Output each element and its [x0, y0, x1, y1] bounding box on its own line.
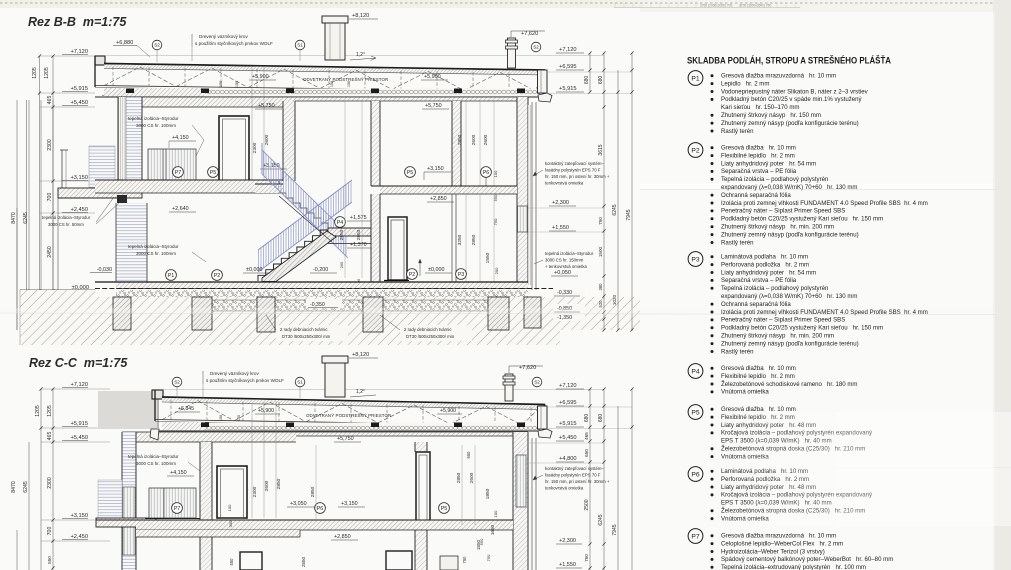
svg-text:Zhutnený štrkový násyp hr. m: Zhutnený štrkový násyp hr. min. 200 mm: [721, 224, 834, 231]
svg-text:s použitím styčníkových prvkov: s použitím styčníkových prvkov WOLF: [206, 378, 284, 383]
svg-text:2850: 2850: [276, 478, 282, 489]
svg-text:2850: 2850: [456, 472, 462, 483]
svg-text:kontaktný zatepľovací systém–: kontaktný zatepľovací systém–: [545, 161, 604, 166]
svg-text:700: 700: [47, 193, 53, 202]
svg-text:3000 CS hr. 100mm: 3000 CS hr. 100mm: [136, 251, 176, 256]
svg-text:2600: 2600: [483, 134, 489, 145]
svg-text:380: 380: [598, 283, 603, 291]
svg-text:750: 750: [584, 554, 589, 562]
svg-text:Penetračný náter – Siplast Pri: Penetračný náter – Siplast Primer Speed …: [721, 208, 845, 215]
svg-text:S1: S1: [297, 43, 303, 48]
svg-text:±0,000: ±0,000: [246, 267, 262, 273]
svg-text:2850: 2850: [310, 486, 316, 497]
svg-text:Rastlý terén: Rastlý terén: [721, 348, 754, 355]
svg-text:+3,150: +3,150: [427, 166, 444, 172]
svg-text:Izolácia proti zemnej vlhkosti: Izolácia proti zemnej vlhkosti FUNDAMENT…: [721, 200, 928, 207]
svg-text:fasádny polystyrén EPS 70 F: fasádny polystyrén EPS 70 F: [545, 473, 601, 478]
svg-text:Laminátová podlaha hr. 10 mm: Laminátová podlaha hr. 10 mm: [721, 254, 808, 261]
svg-text:Zhutnený štrkový násyp hr. m: Zhutnený štrkový násyp hr. min. 200 mm: [721, 333, 834, 340]
svg-text:+3,150: +3,150: [70, 175, 88, 181]
svg-text:Rez B-B m=1:75: Rez B-B m=1:75: [28, 15, 127, 29]
svg-text:Liaty anhydridový poter hr.: Liaty anhydridový poter hr. 54 mm: [721, 269, 816, 276]
svg-text:+5,915: +5,915: [70, 421, 88, 427]
svg-text:2 rady debniacich tvárnic: 2 rady debniacich tvárnic: [280, 327, 328, 332]
svg-text:+3,150: +3,150: [70, 513, 88, 519]
svg-text:+6,845: +6,845: [178, 406, 194, 412]
svg-text:Vodonepriepustný náter Slikato: Vodonepriepustný náter Slikaton B, náter…: [721, 88, 869, 95]
svg-text:+6,595: +6,595: [559, 64, 577, 70]
svg-text:2300: 2300: [47, 477, 53, 489]
svg-text:+1,550: +1,550: [552, 225, 569, 231]
svg-text:1,2°: 1,2°: [356, 389, 365, 395]
svg-text:+ tenkovrstvá omietka: + tenkovrstvá omietka: [545, 264, 588, 269]
svg-text:Podkladný betón C20/25 vystuže: Podkladný betón C20/25 vystužený Kari si…: [721, 216, 883, 223]
svg-text:Drevený väzníkový krov: Drevený väzníkový krov: [210, 371, 259, 376]
svg-text:+5,750: +5,750: [258, 103, 275, 109]
svg-text:+0,050: +0,050: [554, 270, 571, 276]
svg-text:100: 100: [227, 504, 232, 511]
svg-text:Spádový cementový balkónový po: Spádový cementový balkónový poter–WeberB…: [721, 556, 893, 563]
svg-text:P1: P1: [168, 273, 175, 279]
svg-text:+5,450: +5,450: [70, 100, 88, 106]
svg-text:Gresová dlažba hr. 10 mm: Gresová dlažba hr. 10 mm: [721, 365, 796, 372]
svg-text:1205: 1205: [44, 67, 50, 79]
svg-text:200: 200: [339, 261, 344, 268]
svg-text:P5: P5: [441, 506, 448, 512]
svg-text:7945: 7945: [626, 209, 632, 220]
svg-text:+6,880: +6,880: [116, 40, 133, 46]
svg-text:1205: 1205: [47, 405, 53, 417]
svg-text:Separačná vrstva – PE fólia: Separačná vrstva – PE fólia: [721, 277, 797, 284]
svg-text:150: 150: [235, 81, 239, 87]
svg-text:+3,050: +3,050: [290, 501, 307, 507]
svg-text:S2: S2: [174, 380, 180, 385]
svg-text:-0,350: -0,350: [310, 302, 325, 308]
svg-text:Zhutnený zemný násyp (podľa ko: Zhutnený zemný násyp (podľa konfigurácie…: [721, 231, 859, 238]
svg-text:DT30 /500x250x300/ mm: DT30 /500x250x300/ mm: [282, 334, 331, 339]
svg-text:2 rady debniacich tvárnic: 2 rady debniacich tvárnic: [404, 327, 452, 332]
svg-text:Perforovaná podložka hr. 2 m: Perforovaná podložka hr. 2 mm: [721, 261, 809, 268]
svg-text:2450: 2450: [47, 246, 53, 258]
svg-text:+7,120: +7,120: [559, 47, 577, 53]
svg-text:750: 750: [462, 556, 467, 564]
svg-text:P2: P2: [409, 272, 416, 278]
svg-text:7945: 7945: [612, 524, 618, 535]
svg-text:P7: P7: [174, 506, 181, 512]
svg-text:Tepelná izolácia–extrudovaný p: Tepelná izolácia–extrudovaný polystyrén …: [721, 564, 866, 570]
svg-text:-0,200: -0,200: [313, 267, 328, 273]
svg-text:+1,550: +1,550: [559, 562, 576, 568]
svg-text:P3: P3: [458, 272, 465, 278]
svg-text:Gresová dlažba hr. 10 mm: Gresová dlažba hr. 10 mm: [721, 406, 796, 413]
svg-text:Ochranná separačná fólia: Ochranná separačná fólia: [721, 192, 791, 199]
svg-text:+4,800: +4,800: [559, 456, 577, 462]
svg-text:+5,450: +5,450: [70, 435, 88, 441]
svg-text:hr. 150 mm, pri ostení hr. 30m: hr. 150 mm, pri ostení hr. 30mm +: [545, 174, 610, 179]
svg-text:680: 680: [598, 414, 604, 423]
svg-text:SKLADBA PODLÁH, STROPU A STREŠ: SKLADBA PODLÁH, STROPU A STREŠNÉHO PLÁŠŤ…: [687, 55, 891, 67]
svg-text:Gresová dlažba mrazuvzdorná: Gresová dlažba mrazuvzdorná hr. 10 mm: [721, 73, 836, 80]
svg-text:P4: P4: [337, 220, 344, 226]
svg-text:+2,850: +2,850: [430, 196, 447, 202]
svg-text:465: 465: [47, 432, 53, 441]
svg-text:2600: 2600: [469, 472, 475, 483]
svg-text:150: 150: [219, 415, 223, 421]
svg-text:520: 520: [598, 300, 603, 308]
svg-text:3700 (2000x2000) 700 37: 3700 (2000x2000) 700 3700 (2000x2000) 70…: [700, 4, 771, 8]
svg-text:+2,300: +2,300: [552, 200, 569, 206]
svg-text:Rastlý terén: Rastlý terén: [721, 128, 754, 135]
svg-text:P3: P3: [691, 256, 699, 263]
svg-text:Ochranná separačná fólia: Ochranná separačná fólia: [721, 301, 791, 308]
svg-text:+5,915: +5,915: [559, 86, 577, 92]
svg-text:Flexibilné lepidlo hr. 2 mm: Flexibilné lepidlo hr. 2 mm: [721, 373, 795, 380]
svg-text:Železobetónové schodiskové ram: Železobetónové schodiskové rameno hr. 18…: [721, 380, 858, 388]
svg-text:465: 465: [584, 432, 589, 440]
svg-text:S2: S2: [534, 380, 540, 385]
svg-text:tenkovrstvá omietka: tenkovrstvá omietka: [545, 181, 584, 186]
svg-text:-0,330: -0,330: [557, 290, 572, 296]
svg-text:6245: 6245: [612, 204, 618, 215]
svg-text:2600: 2600: [264, 134, 270, 145]
svg-text:Podkladný betón C20/25 v spáde: Podkladný betón C20/25 v spáde min.1% vy…: [721, 96, 863, 103]
svg-text:8470: 8470: [11, 481, 17, 493]
svg-text:750: 750: [493, 218, 498, 225]
svg-text:P7: P7: [175, 170, 182, 176]
svg-text:+4,150: +4,150: [172, 135, 189, 141]
svg-text:6245: 6245: [598, 514, 604, 525]
svg-text:1,2°: 1,2°: [356, 52, 365, 58]
svg-text:+8,120: +8,120: [352, 352, 369, 358]
svg-text:P5: P5: [407, 170, 414, 176]
svg-text:+7,120: +7,120: [70, 382, 88, 388]
svg-text:Separačná vrstva – PE fólia: Separačná vrstva – PE fólia: [721, 168, 797, 175]
svg-text:tepelná izolácia–Styrodur: tepelná izolácia–Styrodur: [128, 454, 179, 459]
svg-text:2300: 2300: [252, 142, 258, 153]
svg-text:tepelná izolácia–Styrodur: tepelná izolácia–Styrodur: [128, 244, 179, 249]
svg-text:P7: P7: [691, 533, 699, 540]
svg-text:1205: 1205: [35, 405, 41, 417]
svg-text:Podkladný betón C20/25 vystuže: Podkladný betón C20/25 vystužený Kari si…: [721, 325, 883, 332]
svg-text:2850: 2850: [471, 234, 477, 245]
svg-text:3000 CS hr. 50mm: 3000 CS hr. 50mm: [48, 222, 84, 227]
svg-text:DT30 /500x250x300/ mm: DT30 /500x250x300/ mm: [406, 334, 455, 339]
svg-text:hr. 150 mm, pri ostení hr. 30m: hr. 150 mm, pri ostení hr. 30mm +: [545, 479, 610, 484]
svg-text:Liaty anhydridový poter hr.: Liaty anhydridový poter hr. 54 mm: [721, 160, 816, 167]
svg-text:P6: P6: [691, 471, 699, 478]
svg-text:465: 465: [47, 96, 53, 105]
svg-text:Vnútorná omietka: Vnútorná omietka: [721, 389, 769, 396]
svg-text:+8,120: +8,120: [352, 13, 369, 19]
svg-text:S1: S1: [297, 380, 303, 385]
svg-text:Zhutnený zemný násyp (podľa ko: Zhutnený zemný násyp (podľa konfigurácie…: [721, 120, 859, 127]
svg-text:fasádny polystyrén EPS 70 F: fasádny polystyrén EPS 70 F: [545, 168, 601, 173]
svg-text:2300: 2300: [252, 486, 258, 497]
svg-text:P6: P6: [317, 506, 324, 512]
svg-text:550: 550: [47, 556, 52, 564]
svg-text:+7,120: +7,120: [559, 383, 577, 389]
svg-text:1500: 1500: [598, 246, 603, 257]
svg-text:+5,900: +5,900: [258, 408, 274, 414]
svg-text:tepelná izolácia–Styrodur: tepelná izolácia–Styrodur: [128, 116, 179, 121]
svg-text:+7,120: +7,120: [70, 49, 88, 55]
svg-text:2850: 2850: [457, 134, 463, 145]
svg-text:680: 680: [584, 414, 590, 423]
svg-text:2850: 2850: [356, 229, 362, 240]
svg-text:P5: P5: [691, 409, 699, 416]
svg-text:s použitím styčníkových prvkov: s použitím styčníkových prvkov WOLF: [195, 41, 273, 46]
svg-text:150: 150: [219, 81, 223, 87]
svg-text:+2,640: +2,640: [172, 206, 189, 212]
svg-text:150: 150: [347, 81, 351, 87]
svg-text:P4: P4: [691, 368, 699, 375]
svg-text:100: 100: [493, 170, 498, 177]
svg-text:+3,150: +3,150: [341, 501, 358, 507]
svg-text:Rez C-C m=1:75: Rez C-C m=1:75: [29, 356, 128, 370]
svg-text:Drevený väzníkový krov: Drevený väzníkový krov: [199, 34, 248, 39]
svg-text:650: 650: [584, 449, 589, 457]
svg-text:+2,450: +2,450: [70, 207, 88, 213]
svg-text:100: 100: [493, 510, 498, 517]
svg-text:+6,595: +6,595: [559, 400, 577, 406]
svg-text:2300: 2300: [47, 139, 53, 151]
svg-text:-1,350: -1,350: [557, 315, 572, 321]
svg-text:expandovaný (λ=0,038 W/mK) 70+: expandovaný (λ=0,038 W/mK) 70+60 hr. 130…: [721, 184, 858, 191]
svg-text:+7,620: +7,620: [521, 31, 538, 37]
svg-text:Zhutnený zemný násyp (podľa ko: Zhutnený zemný násyp (podľa konfigurácie…: [721, 340, 859, 347]
svg-text:6245: 6245: [23, 212, 29, 224]
svg-text:+5,900: +5,900: [440, 408, 456, 414]
svg-text:1020: 1020: [612, 294, 617, 305]
svg-text:2600: 2600: [471, 134, 477, 145]
svg-text:Flexibilné lepidlo hr. 2 mm: Flexibilné lepidlo hr. 2 mm: [721, 152, 795, 159]
svg-text:750: 750: [598, 217, 603, 225]
svg-text:+1,575: +1,575: [350, 215, 367, 221]
svg-text:P2: P2: [214, 273, 221, 279]
svg-text:S2: S2: [154, 43, 160, 48]
svg-text:+5,900: +5,900: [252, 74, 269, 80]
svg-text:+4,150: +4,150: [170, 470, 187, 476]
svg-text:1205: 1205: [32, 67, 38, 79]
svg-text:-0,030: -0,030: [97, 267, 112, 273]
svg-text:3250: 3250: [457, 234, 463, 245]
svg-text:ODVETRANÝ PODSTREŠNÝ PRIESTOR: ODVETRANÝ PODSTREŠNÝ PRIESTOR: [306, 413, 391, 418]
svg-text:3615: 3615: [598, 144, 604, 155]
svg-text:tepelná izolácia–Styrodur: tepelná izolácia–Styrodur: [42, 215, 91, 220]
svg-text:Kari sieťou hr. 150–170 mm: Kari sieťou hr. 150–170 mm: [721, 104, 800, 111]
svg-text:300: 300: [228, 520, 233, 527]
svg-text:tepelná izolácia–Styrodur: tepelná izolácia–Styrodur: [545, 251, 594, 256]
svg-text:+5,915: +5,915: [559, 421, 577, 427]
svg-text:2850: 2850: [301, 556, 306, 567]
svg-text:680: 680: [598, 76, 604, 85]
svg-text:ODVETRANÝ PODSTREŠNÝ PRIESTOR: ODVETRANÝ PODSTREŠNÝ PRIESTOR: [303, 77, 388, 82]
svg-text:+5,750: +5,750: [425, 103, 442, 109]
svg-text:tenkovrstvá omietka: tenkovrstvá omietka: [545, 486, 584, 491]
svg-text:+2,850: +2,850: [334, 534, 351, 540]
svg-text:Penetračný náter – Siplast Pri: Penetračný náter – Siplast Primer Speed …: [721, 317, 845, 324]
svg-text:2850: 2850: [339, 229, 345, 240]
svg-text:550: 550: [479, 538, 484, 545]
svg-text:650: 650: [466, 451, 471, 459]
svg-text:550: 550: [229, 558, 234, 566]
svg-text:1650: 1650: [490, 524, 495, 535]
svg-text:expandovaný (λ=0,038 W/mK) 70+: expandovaný (λ=0,038 W/mK) 70+60 hr. 130…: [721, 293, 858, 300]
svg-text:150: 150: [330, 81, 334, 87]
svg-text:+1,370: +1,370: [350, 242, 367, 248]
svg-text:Gresová dlažba mrazuvzdorná: Gresová dlažba mrazuvzdorná hr. 10 mm: [721, 533, 836, 540]
svg-text:6245: 6245: [23, 481, 29, 493]
svg-text:+5,900: +5,900: [424, 74, 441, 80]
svg-text:1850: 1850: [485, 488, 491, 499]
svg-text:Tepelná izolácia – podlahový p: Tepelná izolácia – podlahový polystyrén: [721, 176, 828, 183]
svg-text:3000 CS hr. 100mm: 3000 CS hr. 100mm: [136, 461, 176, 466]
svg-text:P2: P2: [691, 147, 699, 154]
svg-text:550: 550: [493, 194, 498, 201]
svg-text:±0,000: ±0,000: [428, 267, 444, 273]
svg-text:3000 CS hr. 100mm: 3000 CS hr. 100mm: [136, 123, 176, 128]
svg-text:+5,750: +5,750: [337, 436, 354, 442]
svg-text:750: 750: [486, 554, 491, 561]
svg-text:Izolácia proti zemnej vlhkosti: Izolácia proti zemnej vlhkosti FUNDAMENT…: [721, 309, 928, 316]
svg-text:P6: P6: [483, 170, 490, 176]
svg-text:Tepelná izolácia – podlahový p: Tepelná izolácia – podlahový polystyrén: [721, 285, 828, 292]
svg-text:Zhutnený štrkový násyp hr. 1: Zhutnený štrkový násyp hr. 150 mm: [721, 112, 821, 119]
svg-text:P5: P5: [210, 170, 217, 176]
svg-text:2500: 2500: [584, 499, 590, 510]
svg-text:3000 CS hr. 150mm: 3000 CS hr. 150mm: [545, 258, 584, 263]
svg-text:Hydroizolácia–Weber Terizol (3: Hydroizolácia–Weber Terizol (3 vrstvy): [721, 548, 825, 555]
svg-text:200: 200: [494, 267, 499, 274]
svg-text:1550: 1550: [485, 252, 491, 263]
svg-text:Rastlý terén: Rastlý terén: [721, 239, 754, 246]
svg-text:+2,450: +2,450: [70, 534, 88, 540]
svg-text:P1: P1: [691, 75, 699, 82]
svg-text:kontaktný zatepľovací systém–: kontaktný zatepľovací systém–: [545, 466, 604, 471]
svg-text:680: 680: [584, 76, 590, 85]
svg-text:2600: 2600: [264, 480, 270, 491]
svg-text:Gresová dlažba hr. 10 mm: Gresová dlažba hr. 10 mm: [721, 145, 796, 152]
svg-text:700: 700: [47, 527, 53, 536]
svg-text:150: 150: [237, 415, 241, 421]
svg-text:+5,450: +5,450: [559, 435, 577, 441]
svg-text:+5,915: +5,915: [70, 86, 88, 92]
svg-text:Celoplošné lepidlo–WeberCol Fl: Celoplošné lepidlo–WeberCol Flex hr. 2 m…: [721, 540, 843, 547]
svg-text:S2: S2: [533, 45, 539, 50]
svg-text:Lepidlo hr. 2 mm: Lepidlo hr. 2 mm: [721, 80, 769, 87]
svg-text:+2,300: +2,300: [559, 538, 576, 544]
svg-text:8470: 8470: [11, 212, 17, 224]
